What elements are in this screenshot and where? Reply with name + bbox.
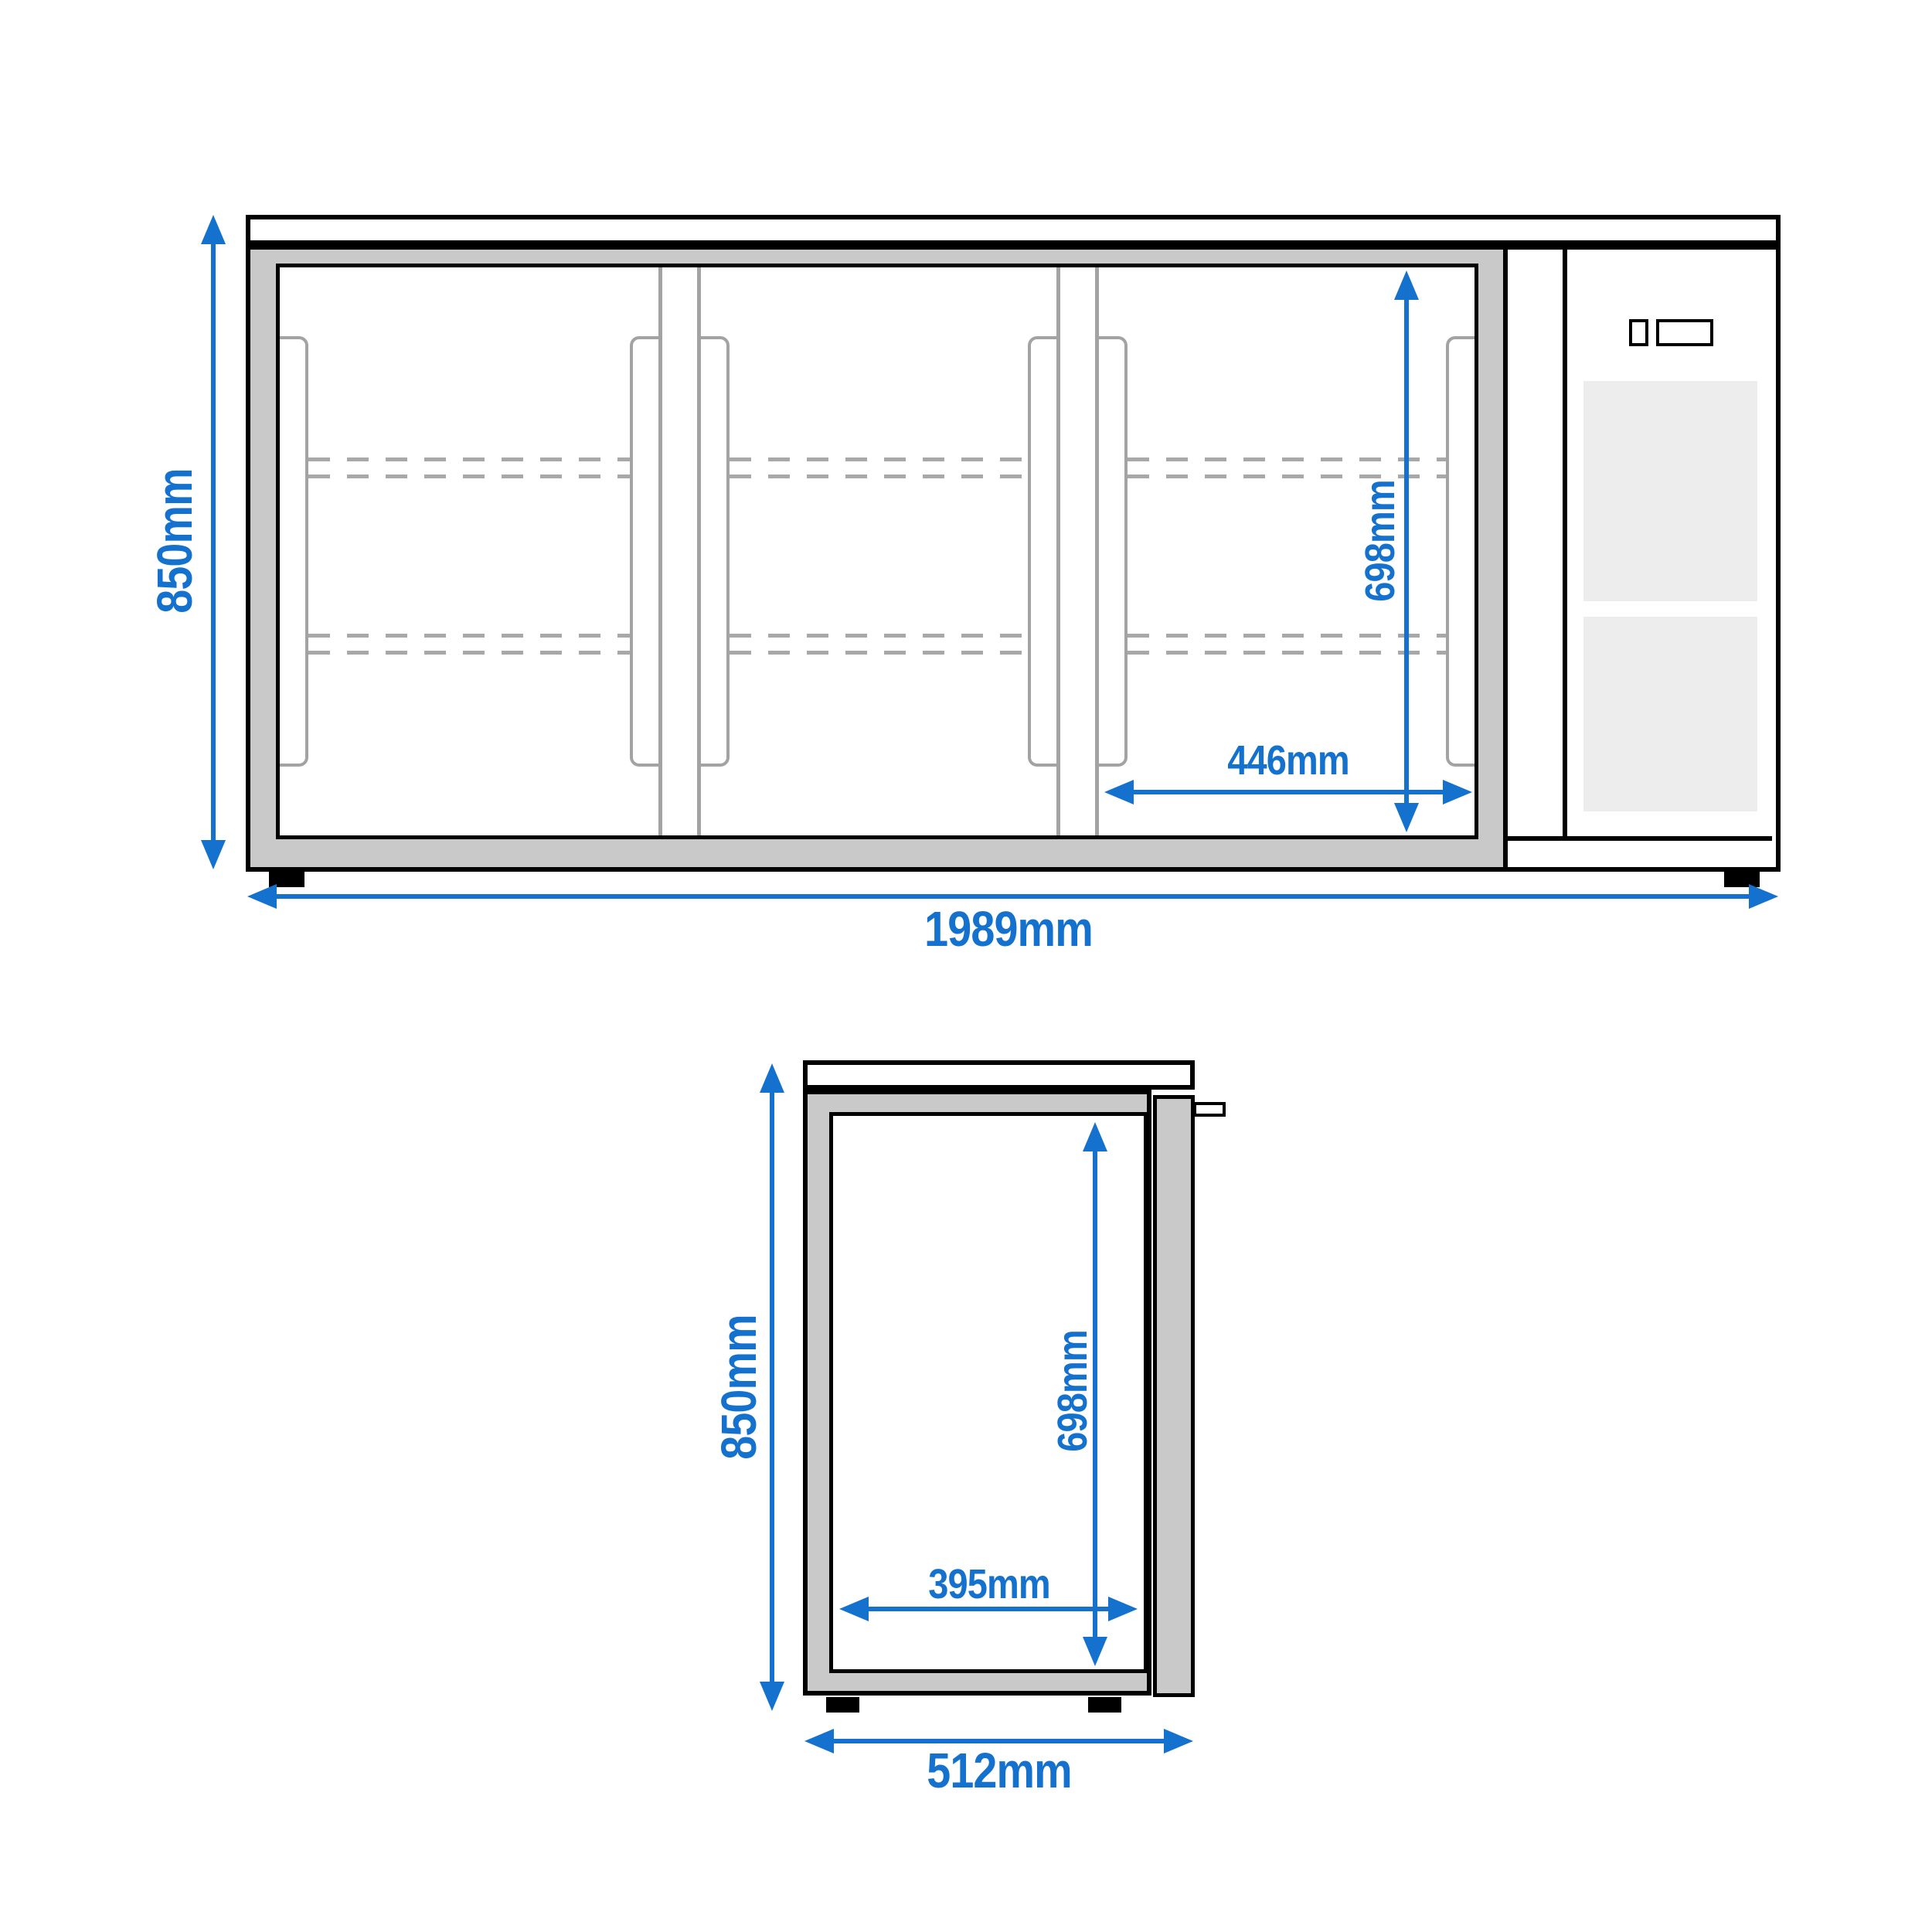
shelf-line <box>730 474 1028 478</box>
arrowhead-up-icon <box>1394 270 1419 300</box>
dim-side-interior-width-label: 395mm <box>928 1563 1050 1605</box>
arrowhead-left-icon <box>1104 780 1134 804</box>
arrowhead-down-icon <box>1394 803 1419 832</box>
arrowhead-down-icon <box>201 840 226 869</box>
door-handle <box>1099 336 1128 767</box>
shelf-line <box>1128 457 1446 461</box>
arrowhead-down-icon <box>1083 1637 1107 1666</box>
control-switch <box>1629 319 1648 346</box>
arrowhead-right-icon <box>1108 1597 1138 1621</box>
partition-line-right <box>1563 250 1567 841</box>
side-foot-front <box>826 1697 859 1713</box>
dim-front-door-width-label: 446mm <box>1227 740 1349 781</box>
arrowhead-up-icon <box>1083 1122 1107 1151</box>
dim-side-depth-label: 512mm <box>927 1746 1072 1795</box>
arrowhead-left-icon <box>247 884 277 909</box>
arrowhead-up-icon <box>201 215 226 244</box>
control-display <box>1656 319 1713 346</box>
arrowhead-up-icon <box>760 1063 784 1093</box>
shelf-line <box>308 474 630 478</box>
shelf-line <box>308 634 630 638</box>
dim-front-width-label: 1989mm <box>924 904 1093 954</box>
front-top-panel <box>246 215 1781 245</box>
dim-front-door-height-label: 698mm <box>1359 480 1401 602</box>
side-foot-rear <box>1088 1697 1121 1713</box>
arrowhead-right-icon <box>1164 1729 1193 1753</box>
arrowhead-right-icon <box>1443 780 1472 804</box>
arrowhead-left-icon <box>839 1597 869 1621</box>
shelf-line <box>308 457 630 461</box>
arrowhead-left-icon <box>804 1729 834 1753</box>
dim-line <box>274 894 1752 899</box>
dim-front-height-label: 850mm <box>150 468 199 614</box>
dimension-diagram: 850mm 1989mm 698mm 446mm <box>0 0 1932 1932</box>
shelf-line <box>308 651 630 655</box>
door-divider-line <box>1056 267 1060 835</box>
dim-side-interior-height-label: 698mm <box>1052 1330 1094 1452</box>
dim-line <box>770 1090 774 1685</box>
dim-line <box>1404 297 1409 806</box>
vent-panel-lower <box>1583 617 1757 811</box>
dim-line <box>211 241 216 843</box>
door-handle <box>701 336 730 767</box>
door-divider-line <box>658 267 662 835</box>
door-handle <box>280 336 308 767</box>
dim-line <box>1131 790 1446 794</box>
door-handle <box>1028 336 1056 767</box>
vent-panel-upper <box>1583 381 1757 601</box>
shelf-line <box>1128 651 1446 655</box>
shelf-line <box>730 457 1028 461</box>
arrowhead-right-icon <box>1749 884 1778 909</box>
shelf-line <box>730 651 1028 655</box>
side-door-handle <box>1193 1102 1226 1117</box>
door-handle <box>1446 336 1475 767</box>
door-handle <box>630 336 658 767</box>
partition-line-left <box>1503 250 1508 867</box>
compressor-base-line <box>1508 836 1772 841</box>
dim-side-height-label: 850mm <box>714 1315 764 1460</box>
side-top-panel <box>803 1060 1195 1090</box>
side-door <box>1153 1095 1195 1697</box>
shelf-line <box>1128 634 1446 638</box>
shelf-line <box>1128 474 1446 478</box>
arrowhead-down-icon <box>760 1682 784 1711</box>
shelf-line <box>730 634 1028 638</box>
